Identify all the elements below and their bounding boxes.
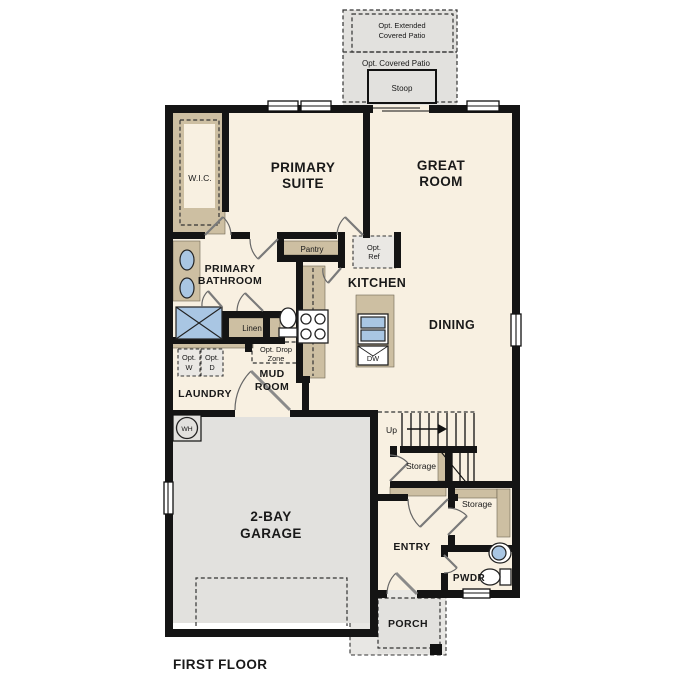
water-heater-label: WH [181, 426, 192, 433]
pwdr-label: PWDR [453, 573, 486, 584]
primary-suite-label-line1: PRIMARY [271, 160, 336, 175]
linen-label: Linen [242, 324, 262, 333]
porch-label: PORCH [388, 618, 428, 630]
up-label: Up [386, 425, 397, 435]
wic-floor [184, 124, 215, 208]
mud-room-label-line2: ROOM [255, 381, 289, 393]
floor-plan-page: Opt. Extended Covered Patio Opt. Covered… [0, 0, 687, 687]
storage-shelf-side [497, 489, 510, 537]
laundry-label: LAUNDRY [178, 388, 232, 400]
floor-plan-drawing: Opt. Extended Covered Patio Opt. Covered… [0, 0, 687, 687]
opt-ref-label-line1: Opt. [367, 243, 381, 252]
vanity-sink-2 [180, 278, 194, 298]
opt-d-label-line2: D [209, 363, 214, 372]
great-room-label-line2: ROOM [419, 174, 463, 189]
entry-label: ENTRY [393, 541, 430, 553]
storage-entry-label: Storage [462, 499, 492, 509]
storage-under-stairs-label: Storage [406, 461, 436, 471]
dishwasher: DW [358, 346, 388, 365]
cooktop [298, 310, 328, 343]
primary-suite-label-line2: SUITE [282, 176, 324, 191]
great-room-label-line1: GREAT [417, 158, 466, 173]
great-room-patio-door [373, 105, 429, 113]
dishwasher-label: DW [367, 354, 379, 363]
garage-label-line2: GARAGE [240, 526, 302, 541]
bath-toilet [279, 308, 297, 337]
stoop-label: Stoop [392, 84, 413, 93]
opt-w-label-line2: W [186, 363, 193, 372]
wic-label: W.I.C. [188, 173, 211, 183]
covered-patio-area: Opt. Extended Covered Patio Opt. Covered… [343, 10, 457, 105]
pantry-label: Pantry [300, 245, 323, 254]
storage-shelf-top [453, 489, 497, 498]
opt-w-label-line1: Opt. [182, 353, 196, 362]
extended-patio-label-line1: Opt. Extended [378, 21, 425, 30]
primary-bathroom-label-line2: BATHROOM [198, 275, 262, 287]
porch-post [430, 644, 442, 655]
garage-label-line1: 2-BAY [250, 509, 291, 524]
mud-room-label-line1: MUD [259, 368, 284, 380]
kitchen-label: KITCHEN [348, 276, 406, 290]
extended-patio-label-line2: Covered Patio [379, 31, 426, 40]
island-sink [358, 314, 388, 344]
shower [176, 307, 222, 339]
plan-title: FIRST FLOOR [173, 657, 267, 672]
opt-drop-zone-label-line2: Zone [268, 354, 285, 363]
covered-patio-label: Opt. Covered Patio [362, 59, 431, 68]
water-heater: WH [173, 415, 201, 441]
pwdr-sink [489, 543, 511, 563]
opt-drop-zone-label-line1: Opt. Drop [260, 345, 292, 354]
vanity-sink-1 [180, 250, 194, 270]
primary-bathroom-label-line1: PRIMARY [205, 263, 256, 275]
opt-d-label-line1: Opt. [205, 353, 219, 362]
opt-ref-label-line2: Ref [368, 252, 380, 261]
dining-label: DINING [429, 318, 475, 332]
